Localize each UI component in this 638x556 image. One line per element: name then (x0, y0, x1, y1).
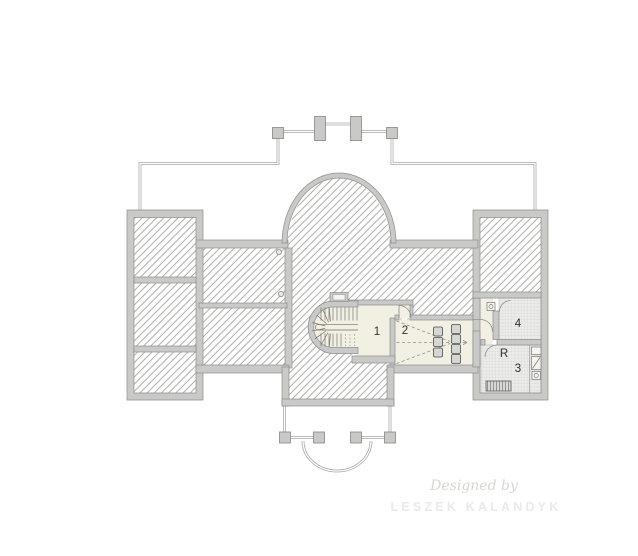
cinema-seat (452, 335, 461, 344)
top-bay-pier (315, 117, 326, 141)
top-bay-pillar (273, 128, 284, 139)
cinema-seat (434, 348, 443, 357)
column-dot (276, 249, 281, 254)
left-wing-hatch (134, 218, 196, 394)
cinema-seat (434, 327, 443, 336)
room4-label: 4 (515, 318, 522, 330)
top-bay-pillar (387, 128, 398, 139)
watermark-name: LESZEK KALANDYK (391, 500, 562, 514)
bottom-bay-pillar (280, 432, 291, 443)
room2-label: 2 (402, 325, 408, 337)
top-bay-pier (351, 117, 362, 141)
watermark-script: Designed by (429, 478, 519, 494)
floor-plan-svg: 1 2 3 4 R Designed by LESZEK KALANDYK (0, 0, 638, 556)
bay-room-hatch (289, 368, 387, 399)
roomR-label: R (500, 348, 508, 360)
bottom-bay-pillar (385, 432, 396, 443)
floor-plan-page: 1 2 3 4 R Designed by LESZEK KALANDYK (0, 0, 638, 556)
cinema-seat (452, 355, 461, 364)
room3-label: 3 (515, 363, 521, 375)
bottom-bay-pillar (351, 432, 362, 443)
cinema-seat (452, 325, 461, 334)
bottom-bay-pillar (314, 432, 325, 443)
cinema-seat (434, 338, 443, 347)
cinema-seat (452, 345, 461, 354)
bathroom-fixture (532, 347, 542, 355)
radiator-bench (486, 381, 511, 391)
column-dot (278, 291, 283, 296)
room1-label: 1 (374, 326, 380, 338)
right-wing-hatch (480, 218, 542, 293)
